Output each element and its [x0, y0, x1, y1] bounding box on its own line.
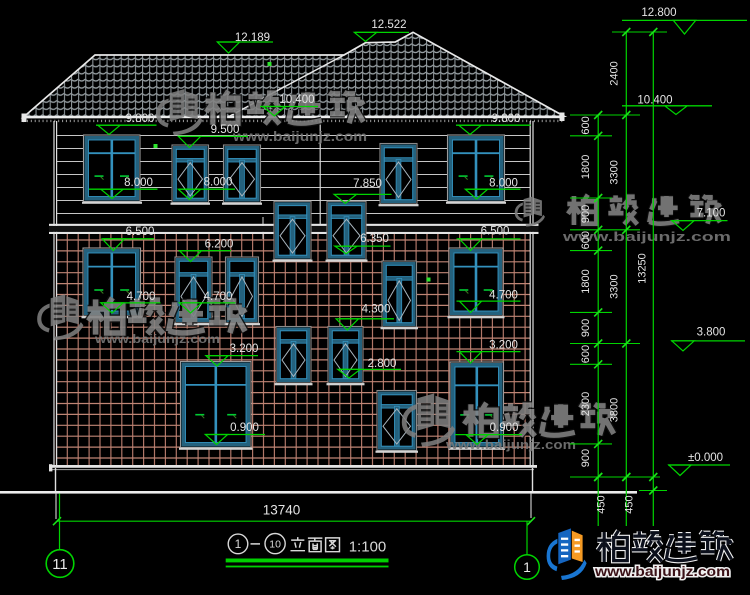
svg-text:10: 10	[269, 539, 281, 551]
svg-text:6.200: 6.200	[205, 239, 234, 251]
svg-text:600: 600	[580, 345, 592, 363]
svg-text:4.300: 4.300	[362, 304, 391, 316]
svg-text:1800: 1800	[580, 155, 592, 179]
svg-text:6.500: 6.500	[481, 226, 510, 238]
svg-text:9.500: 9.500	[211, 124, 240, 136]
svg-text:600: 600	[580, 116, 592, 134]
svg-text:2300: 2300	[580, 392, 592, 416]
svg-text:1:100: 1:100	[349, 539, 387, 556]
svg-text:900: 900	[580, 319, 592, 337]
svg-text:3300: 3300	[609, 274, 621, 298]
svg-text:7.100: 7.100	[697, 208, 726, 220]
svg-text:1800: 1800	[580, 269, 592, 293]
svg-text:www.baijunjz.com: www.baijunjz.com	[232, 129, 367, 144]
svg-text:1: 1	[235, 537, 242, 551]
svg-text:13740: 13740	[263, 503, 301, 518]
svg-text:www.baijunjz.com: www.baijunjz.com	[594, 563, 730, 579]
svg-text:9.800: 9.800	[126, 113, 155, 125]
svg-text:900: 900	[580, 205, 592, 223]
svg-text:8.000: 8.000	[204, 177, 233, 189]
svg-text:12.800: 12.800	[641, 7, 676, 19]
svg-text:8.000: 8.000	[124, 177, 153, 189]
svg-text:www.baijunjz.com: www.baijunjz.com	[445, 438, 576, 452]
svg-text:3800: 3800	[609, 398, 621, 422]
svg-text:3.200: 3.200	[230, 343, 259, 355]
svg-text:4.700: 4.700	[127, 291, 156, 303]
svg-text:3300: 3300	[609, 160, 621, 184]
svg-text:10.400: 10.400	[279, 94, 314, 106]
svg-text:12.522: 12.522	[371, 19, 406, 31]
svg-text:6.500: 6.500	[126, 226, 155, 238]
svg-text:10.400: 10.400	[637, 95, 672, 107]
svg-text:0.900: 0.900	[230, 422, 259, 434]
svg-text:900: 900	[580, 449, 592, 467]
svg-text:450: 450	[624, 495, 636, 513]
svg-text:9.800: 9.800	[492, 113, 521, 125]
svg-text:13250: 13250	[637, 253, 649, 284]
svg-text:4.700: 4.700	[489, 290, 518, 302]
svg-text:8.000: 8.000	[489, 178, 518, 190]
svg-text:1: 1	[523, 559, 531, 575]
svg-text:www.baijunjz.com: www.baijunjz.com	[94, 332, 220, 346]
svg-text:600: 600	[580, 231, 592, 249]
svg-text:0.900: 0.900	[490, 422, 519, 434]
svg-text:4.700: 4.700	[204, 291, 233, 303]
svg-text:3.200: 3.200	[489, 340, 518, 352]
svg-text:2400: 2400	[609, 61, 621, 85]
svg-text:±0.000: ±0.000	[688, 452, 723, 464]
svg-text:7.850: 7.850	[353, 178, 382, 190]
svg-text:6.350: 6.350	[360, 233, 389, 245]
svg-text:11: 11	[52, 556, 68, 573]
svg-text:3.800: 3.800	[697, 327, 726, 339]
svg-text:450: 450	[596, 495, 608, 513]
svg-text:2.800: 2.800	[368, 358, 397, 370]
